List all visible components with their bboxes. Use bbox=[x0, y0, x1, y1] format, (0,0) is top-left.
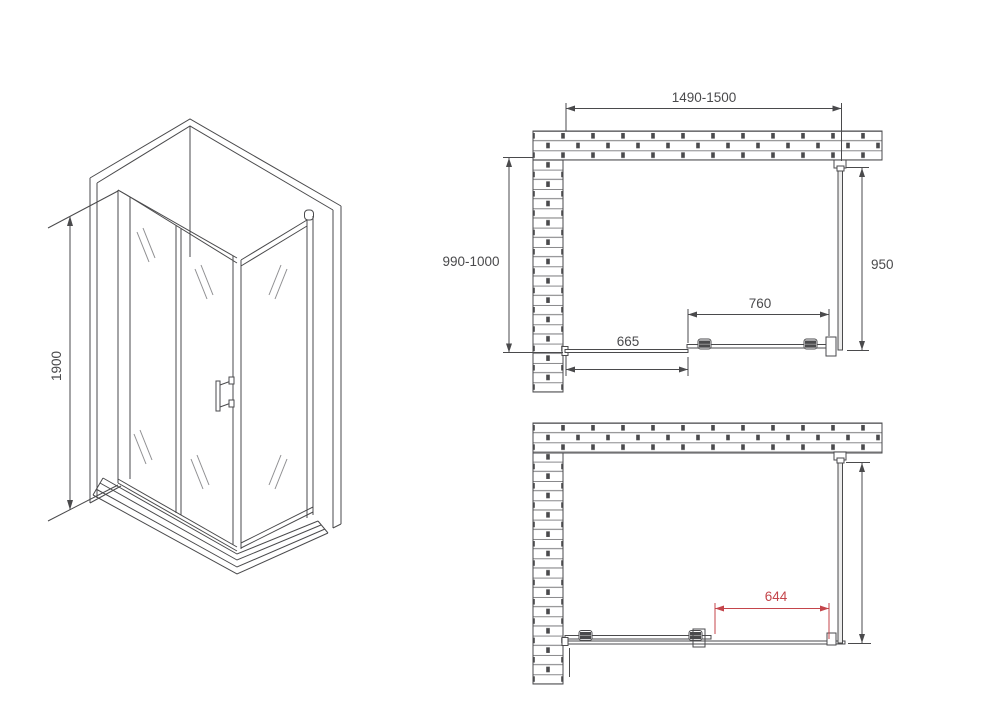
side-panel-plan bbox=[838, 167, 843, 350]
technical-drawing: 1900 1490-1500 bbox=[0, 0, 1000, 707]
glass-hatch-marks bbox=[134, 228, 287, 489]
dimension-fixed-panel-label: 665 bbox=[617, 334, 640, 349]
dimension-fixed-panel: 665 bbox=[566, 334, 688, 376]
walls-isometric bbox=[90, 119, 341, 528]
dimension-depth-label: 990-1000 bbox=[442, 254, 499, 269]
base-tray bbox=[93, 478, 328, 574]
dimension-height-label: 1900 bbox=[49, 351, 64, 381]
dimension-sliding-door: 760 bbox=[688, 296, 829, 343]
bottom-plan-view: 644 bbox=[533, 423, 882, 684]
roller-icon bbox=[804, 339, 817, 349]
dimension-door-opening-label: 644 bbox=[765, 589, 788, 604]
side-panel-plan bbox=[838, 462, 843, 643]
door-handle bbox=[216, 377, 234, 411]
top-plan-view: 1490-1500 990-1000 950 760 bbox=[442, 90, 893, 392]
side-panel-isometric bbox=[241, 210, 314, 548]
dimension-door-opening: 644 bbox=[715, 589, 829, 639]
dimension-side-unlabeled bbox=[846, 463, 871, 644]
dimension-overall-width-label: 1490-1500 bbox=[672, 90, 737, 105]
isometric-view: 1900 bbox=[48, 119, 341, 574]
dimension-side-panel-label: 950 bbox=[871, 257, 894, 272]
door-track-plan-upper bbox=[562, 160, 846, 356]
roller-icon bbox=[698, 339, 711, 349]
door-track-plan-lower bbox=[562, 452, 846, 677]
roller-icon bbox=[689, 631, 702, 641]
fixed-panel-plan bbox=[565, 350, 688, 353]
drawing-canvas: 1900 1490-1500 bbox=[0, 0, 1000, 707]
roller-icon bbox=[579, 631, 592, 641]
dimension-side-panel: 950 bbox=[846, 168, 894, 351]
dimension-height: 1900 bbox=[48, 191, 118, 521]
dimension-sliding-door-label: 760 bbox=[749, 296, 772, 311]
